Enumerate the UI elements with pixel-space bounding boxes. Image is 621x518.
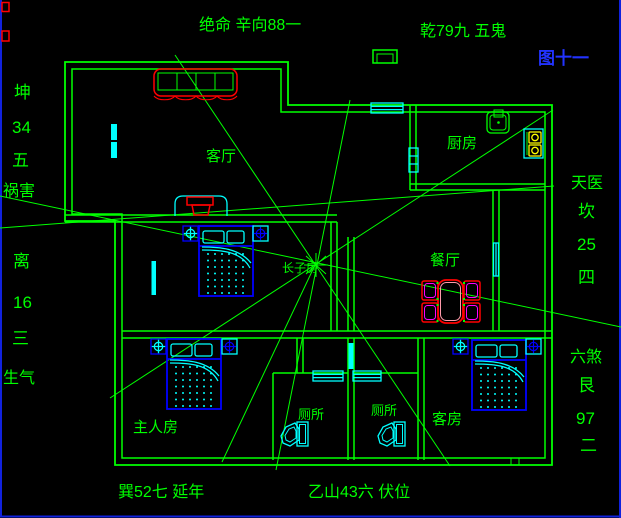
floor-plan-screenshot: 绝命 辛向88一 乾79九 五鬼 图十一 坤 34 五 祸害 离 16 三 生气…	[0, 0, 621, 518]
lamp-icon	[453, 339, 468, 354]
room-label-living: 客厅	[206, 148, 236, 165]
figure-number-label: 图十一	[538, 48, 589, 68]
annotation-san: 三	[12, 329, 29, 348]
door-bedroom-left	[152, 261, 157, 295]
room-label-toilet-right: 厕所	[371, 403, 397, 418]
lamp-icon	[151, 339, 166, 354]
annotation-bottom-center: 乙山43六 伏位	[308, 483, 410, 501]
door-hallway	[349, 343, 354, 369]
fengshui-annotations: 绝命 辛向88一 乾79九 五鬼 图十一 坤 34 五 祸害 离 16 三 生气…	[3, 16, 603, 501]
annotation-16: 16	[13, 293, 32, 312]
annotation-liusha: 六煞	[570, 348, 602, 366]
annotation-25: 25	[577, 235, 596, 254]
lamp-icon	[253, 226, 268, 241]
kitchen-sink	[487, 110, 509, 133]
door-living-left	[111, 124, 117, 158]
annotation-97: 97	[576, 409, 595, 428]
annotation-kan: 坎	[578, 202, 595, 221]
annotation-wu: 五	[12, 151, 29, 170]
room-label-eldest-son: 长子房	[282, 260, 318, 275]
bed-guest	[472, 340, 526, 410]
room-label-toilet-left: 厕所	[298, 407, 324, 422]
room-label-master: 主人房	[133, 419, 178, 436]
annotation-34: 34	[12, 118, 31, 137]
annotation-er: 二	[580, 436, 597, 455]
window-dining-right	[494, 243, 499, 276]
annotation-gen: 艮	[578, 376, 595, 395]
screen-border	[0, 0, 621, 518]
annotation-kun: 坤	[14, 83, 31, 102]
annotation-li: 离	[13, 252, 30, 271]
room-label-kitchen: 厨房	[447, 135, 477, 152]
toilet-right	[378, 422, 405, 446]
annotation-top-left: 绝命 辛向88一	[199, 16, 301, 34]
room-label-guest: 客房	[432, 411, 462, 428]
stove	[524, 129, 543, 158]
annotation-shengqi: 生气	[3, 369, 35, 387]
annotation-tianyi: 天医	[571, 175, 603, 192]
bed-eldest-son	[199, 226, 253, 296]
lamp-icon	[526, 339, 541, 354]
annotation-top-right: 乾79九 五鬼	[420, 22, 506, 40]
annotation-si: 四	[578, 268, 595, 287]
room-label-dining: 餐厅	[430, 252, 460, 269]
annotation-huohai: 祸害	[3, 182, 35, 200]
sofa	[154, 69, 237, 100]
lamp-icon	[183, 226, 198, 241]
cursor-pickbox-marks	[2, 3, 9, 42]
lamp-icon	[222, 339, 237, 354]
annotation-bottom-left: 巽52七 延年	[118, 483, 204, 501]
bed-master	[167, 339, 221, 409]
floor-plan-canvas: 绝命 辛向88一 乾79九 五鬼 图十一 坤 34 五 祸害 离 16 三 生气…	[0, 0, 621, 518]
